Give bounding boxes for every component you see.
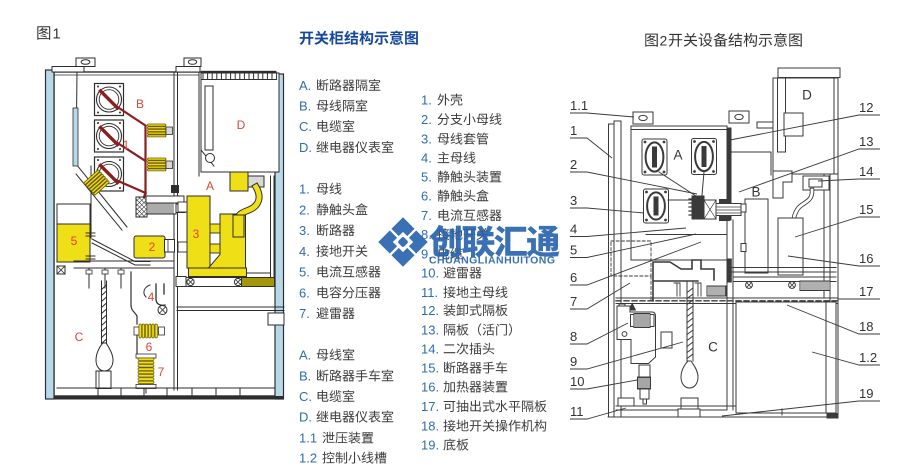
svg-text:11: 11 [570, 404, 584, 419]
svg-text:18: 18 [859, 319, 873, 334]
svg-text:12: 12 [859, 100, 873, 115]
svg-text:B.: B. [299, 99, 311, 114]
svg-text:4: 4 [148, 290, 155, 304]
svg-text:1: 1 [123, 138, 130, 152]
svg-text:4.: 4. [421, 151, 432, 166]
svg-text:14: 14 [859, 164, 873, 179]
svg-text:11.: 11. [421, 285, 438, 300]
svg-text:2: 2 [660, 33, 668, 49]
svg-text:A: A [673, 148, 682, 163]
svg-text:16: 16 [859, 251, 873, 266]
svg-text:19: 19 [859, 386, 873, 401]
svg-text:1.2: 1.2 [859, 350, 877, 365]
svg-text:10: 10 [570, 374, 584, 389]
svg-text:1.: 1. [299, 182, 310, 197]
svg-text:5: 5 [71, 234, 78, 248]
svg-text:7: 7 [158, 365, 165, 379]
svg-text:19.: 19. [421, 438, 439, 453]
svg-text:2.: 2. [421, 112, 432, 127]
svg-text:A.: A. [299, 78, 311, 93]
svg-text:2: 2 [570, 157, 577, 172]
svg-text:1.2: 1.2 [299, 451, 317, 466]
svg-text:7.: 7. [299, 306, 310, 321]
svg-text:12.: 12. [421, 303, 439, 318]
svg-text:18.: 18. [421, 419, 439, 434]
svg-text:3: 3 [193, 227, 200, 241]
svg-text:7: 7 [570, 294, 577, 309]
svg-text:2: 2 [149, 240, 156, 254]
svg-text:6.: 6. [421, 189, 432, 204]
svg-text:D: D [237, 118, 246, 132]
svg-text:8: 8 [570, 329, 577, 344]
svg-text:16.: 16. [421, 380, 439, 395]
svg-text:CHUANGLIANHUITONG: CHUANGLIANHUITONG [429, 255, 555, 267]
svg-text:C: C [75, 330, 84, 344]
svg-text:1: 1 [570, 123, 577, 138]
svg-text:B.: B. [299, 369, 311, 384]
svg-text:4: 4 [570, 222, 577, 237]
svg-text:6: 6 [146, 340, 153, 354]
svg-text:D: D [802, 88, 812, 103]
svg-text:6.: 6. [299, 285, 310, 300]
svg-text:C: C [708, 340, 718, 355]
svg-text:C.: C. [299, 389, 312, 404]
svg-text:D.: D. [299, 140, 312, 155]
svg-text:3.: 3. [421, 132, 432, 147]
svg-text:17: 17 [859, 284, 873, 299]
svg-text:5.: 5. [421, 170, 432, 185]
svg-text:13.: 13. [421, 323, 439, 338]
svg-text:2.: 2. [299, 202, 310, 217]
svg-text:14.: 14. [421, 342, 439, 357]
svg-text:C.: C. [299, 119, 312, 134]
svg-text:5.: 5. [299, 265, 310, 280]
svg-text:6: 6 [570, 270, 577, 285]
svg-text:15: 15 [859, 202, 873, 217]
svg-text:9: 9 [570, 354, 577, 369]
svg-text:4.: 4. [299, 244, 310, 259]
svg-text:17.: 17. [421, 399, 439, 414]
svg-text:3.: 3. [299, 223, 310, 238]
svg-text:5: 5 [570, 243, 577, 258]
svg-text:1: 1 [53, 27, 61, 43]
svg-text:13: 13 [859, 134, 873, 149]
svg-text:B: B [136, 97, 144, 111]
svg-text:7.: 7. [421, 208, 432, 223]
svg-text:3: 3 [570, 193, 577, 208]
svg-text:15.: 15. [421, 361, 439, 376]
svg-text:1.1: 1.1 [299, 431, 317, 446]
svg-text:A: A [206, 179, 214, 193]
svg-text:1.1: 1.1 [570, 98, 588, 113]
svg-text:A.: A. [299, 348, 311, 363]
svg-text:D.: D. [299, 410, 312, 425]
svg-text:1.: 1. [421, 93, 432, 108]
svg-text:10.: 10. [421, 266, 439, 281]
